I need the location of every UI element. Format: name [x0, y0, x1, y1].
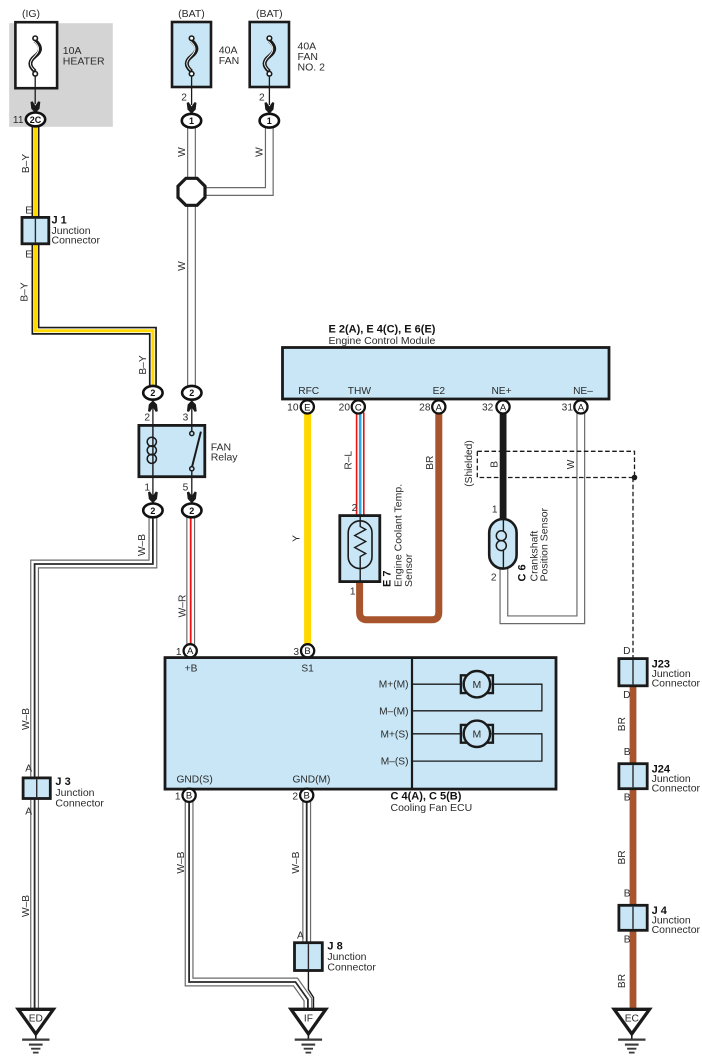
svg-text:Connector: Connector — [652, 924, 701, 936]
svg-text:BR: BR — [617, 717, 628, 731]
svg-text:D: D — [623, 690, 630, 701]
svg-text:1: 1 — [267, 116, 272, 126]
svg-text:B: B — [624, 934, 631, 945]
svg-text:W–B: W–B — [21, 895, 32, 917]
svg-text:C: C — [355, 402, 362, 413]
svg-text:M–(M): M–(M) — [379, 706, 408, 717]
svg-text:A: A — [500, 402, 507, 413]
svg-text:20: 20 — [339, 403, 351, 414]
svg-text:GND(M): GND(M) — [293, 775, 331, 786]
svg-text:3: 3 — [183, 412, 189, 423]
svg-text:Sensor: Sensor — [403, 553, 415, 587]
svg-text:BR: BR — [617, 974, 628, 988]
svg-text:B: B — [186, 791, 192, 802]
svg-text:2: 2 — [181, 93, 187, 104]
svg-text:2: 2 — [189, 388, 194, 398]
svg-text:BR: BR — [425, 456, 436, 470]
svg-text:E 2(A), E 4(C), E 6(E): E 2(A), E 4(C), E 6(E) — [329, 323, 436, 335]
svg-text:B: B — [624, 793, 631, 804]
svg-text:Y: Y — [291, 535, 302, 542]
svg-text:ED: ED — [29, 1014, 43, 1025]
svg-text:2: 2 — [352, 503, 358, 514]
svg-text:NO. 2: NO. 2 — [298, 61, 326, 73]
svg-text:1: 1 — [350, 587, 356, 598]
svg-text:THW: THW — [348, 386, 372, 397]
svg-text:EC: EC — [625, 1014, 639, 1025]
svg-text:M: M — [473, 679, 482, 691]
svg-text:M+(S): M+(S) — [380, 729, 408, 740]
svg-text:1: 1 — [176, 647, 182, 658]
svg-text:W–B: W–B — [137, 534, 148, 556]
svg-text:E: E — [304, 402, 310, 413]
svg-text:Connector: Connector — [327, 962, 376, 974]
svg-text:B: B — [304, 646, 310, 657]
svg-text:S1: S1 — [301, 664, 314, 675]
svg-text:E2: E2 — [433, 386, 446, 397]
svg-text:Connector: Connector — [652, 677, 701, 689]
svg-text:A: A — [25, 807, 32, 818]
svg-text:Position Sensor: Position Sensor — [539, 507, 551, 581]
svg-text:W–B: W–B — [291, 851, 302, 873]
svg-text:E: E — [25, 250, 32, 261]
svg-text:B: B — [624, 747, 631, 758]
svg-text:A: A — [25, 764, 32, 775]
svg-text:+B: +B — [185, 664, 198, 675]
svg-text:B: B — [624, 888, 631, 899]
svg-text:RFC: RFC — [298, 386, 319, 397]
svg-text:(Shielded): (Shielded) — [464, 440, 475, 486]
svg-text:C 4(A), C 5(B): C 4(A), C 5(B) — [391, 791, 462, 803]
svg-text:3: 3 — [293, 647, 299, 658]
svg-text:W: W — [177, 147, 188, 157]
svg-text:2: 2 — [150, 388, 155, 398]
svg-text:C 6: C 6 — [517, 564, 529, 581]
svg-text:32: 32 — [482, 403, 494, 414]
svg-text:B–Y: B–Y — [20, 282, 31, 301]
svg-text:B–Y: B–Y — [138, 355, 149, 374]
svg-text:2: 2 — [491, 572, 497, 583]
svg-text:28: 28 — [419, 403, 431, 414]
svg-text:HEATER: HEATER — [63, 56, 105, 68]
svg-text:5: 5 — [183, 483, 189, 494]
svg-text:A: A — [578, 402, 585, 413]
svg-text:A: A — [436, 402, 443, 413]
svg-text:W–B: W–B — [21, 708, 32, 730]
svg-text:Connector: Connector — [55, 798, 104, 810]
svg-text:M: M — [473, 729, 482, 741]
svg-text:FAN: FAN — [219, 55, 239, 67]
svg-text:Relay: Relay — [211, 452, 239, 464]
svg-text:M–(S): M–(S) — [381, 757, 409, 768]
svg-text:R–L: R–L — [344, 451, 355, 470]
svg-text:W–R: W–R — [178, 595, 189, 618]
svg-text:Connector: Connector — [652, 782, 701, 794]
svg-text:M+(M): M+(M) — [379, 680, 409, 691]
svg-text:D: D — [623, 646, 630, 657]
svg-text:2: 2 — [292, 791, 298, 802]
svg-text:B: B — [490, 461, 501, 468]
svg-text:10: 10 — [287, 403, 299, 414]
svg-text:(IG): (IG) — [22, 8, 40, 20]
svg-text:NE–: NE– — [573, 386, 593, 397]
svg-text:1: 1 — [492, 504, 498, 515]
svg-text:BR: BR — [617, 850, 628, 864]
svg-text:31: 31 — [562, 403, 574, 414]
svg-text:Engine Control Module: Engine Control Module — [329, 335, 436, 347]
svg-text:W: W — [566, 459, 577, 469]
svg-text:11: 11 — [13, 115, 24, 126]
svg-text:A: A — [187, 646, 194, 657]
svg-text:W: W — [254, 147, 265, 157]
svg-text:Connector: Connector — [52, 235, 101, 247]
svg-text:GND(S): GND(S) — [177, 775, 213, 786]
svg-text:W: W — [177, 261, 188, 271]
svg-text:E: E — [25, 205, 32, 216]
svg-text:2: 2 — [259, 93, 265, 104]
svg-text:(BAT): (BAT) — [256, 8, 283, 20]
svg-text:W–B: W–B — [176, 851, 187, 873]
svg-text:B–Y: B–Y — [21, 154, 32, 173]
svg-text:(BAT): (BAT) — [178, 8, 205, 20]
svg-text:A: A — [297, 931, 304, 942]
svg-text:2: 2 — [150, 506, 155, 516]
svg-text:2: 2 — [189, 506, 194, 516]
svg-text:1: 1 — [189, 116, 194, 126]
svg-text:IF: IF — [304, 1014, 313, 1025]
svg-text:1: 1 — [175, 791, 181, 802]
svg-text:2C: 2C — [30, 115, 42, 125]
svg-text:2: 2 — [144, 412, 150, 423]
svg-text:NE+: NE+ — [491, 386, 511, 397]
svg-text:B: B — [304, 791, 310, 802]
svg-text:Cooling Fan ECU: Cooling Fan ECU — [391, 802, 473, 814]
